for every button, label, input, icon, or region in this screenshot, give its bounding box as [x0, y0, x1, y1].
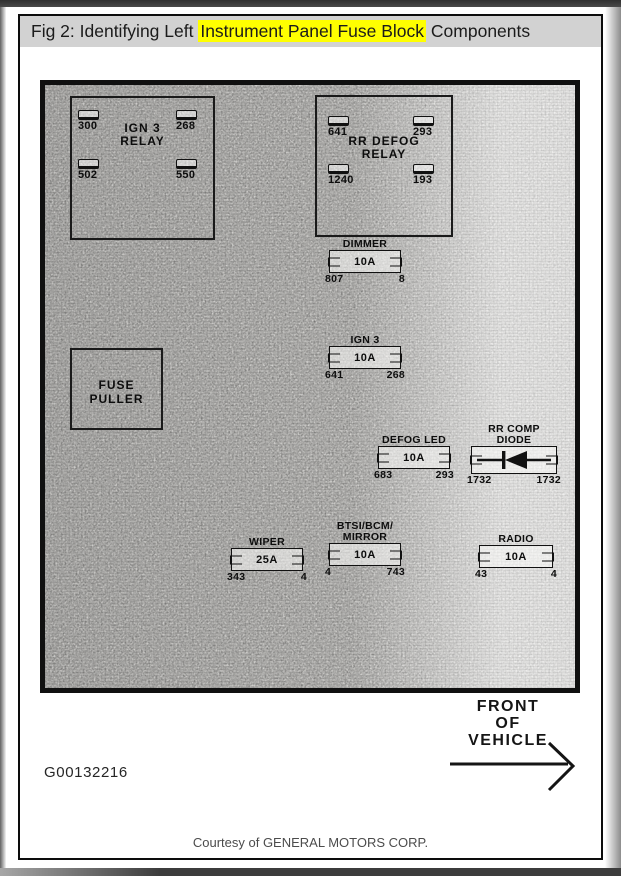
terminal-number: 641: [325, 370, 343, 381]
fuse-clip-icon: [478, 552, 490, 561]
relay-terminal: 300: [78, 110, 114, 132]
fuse-body: 10A: [329, 250, 401, 273]
bottom-dark-bar: [0, 868, 621, 876]
relay-name-line: RELAY: [317, 148, 451, 161]
fuse-rating: 10A: [403, 452, 425, 464]
relay-name: RR DEFOG RELAY: [317, 135, 451, 161]
terminal-number: 807: [325, 274, 343, 285]
front-label-line: VEHICLE: [450, 732, 566, 749]
fuse-rating: 10A: [354, 256, 376, 268]
fuse-clip-icon: [390, 550, 402, 559]
terminal-number: 300: [78, 121, 97, 132]
rr-comp-diode: RR COMP DIODE 1732 1732: [471, 424, 557, 486]
fuse-clip-icon: [390, 257, 402, 266]
title-highlight: Instrument Panel Fuse Block: [198, 20, 426, 42]
title-suffix: Components: [426, 21, 530, 41]
terminal-number: 293: [436, 470, 454, 481]
terminal-number: 4: [551, 569, 557, 580]
fuse-rating: 10A: [354, 352, 376, 364]
left-edge-shadow: [0, 7, 6, 868]
fuse-rating: 10A: [354, 549, 376, 561]
fuse-terminals: 343 4: [227, 572, 307, 583]
rr-defog-relay-box: RR DEFOG RELAY 641 293 1240 193: [315, 95, 453, 237]
terminal-icon: [328, 116, 349, 126]
fuse-clip-icon: [390, 353, 402, 362]
fuse-puller-line: FUSE: [72, 378, 161, 392]
terminal-number: 4: [301, 572, 307, 583]
terminal-number: 268: [387, 370, 405, 381]
fuse-body: 10A: [479, 545, 553, 568]
fuse-terminals: 43 4: [475, 569, 557, 580]
terminal-icon: [78, 159, 99, 169]
fuse-terminals: 683 293: [374, 470, 454, 481]
fuse-ign3: IGN 3 10A 641 268: [329, 335, 401, 381]
terminal-icon: [328, 164, 349, 174]
fuse-puller-box: FUSE PULLER: [70, 348, 163, 430]
relay-terminal: 1240: [328, 164, 364, 186]
terminal-number: 43: [475, 569, 487, 580]
diode-body: [471, 446, 557, 474]
terminal-icon: [78, 110, 99, 120]
fuse-defog-led: DEFOG LED 10A 683 293: [378, 435, 450, 481]
title-prefix: Fig 2: Identifying Left: [31, 21, 198, 41]
fuse-name: DIMMER: [329, 239, 401, 250]
terminal-number: 343: [227, 572, 245, 583]
terminal-icon: [176, 110, 197, 120]
terminal-number: 1240: [328, 175, 354, 186]
fuse-clip-icon: [542, 552, 554, 561]
terminal-number: 4: [325, 567, 331, 578]
terminal-number: 550: [176, 170, 195, 181]
figure-title: Fig 2: Identifying Left Instrument Panel…: [20, 16, 601, 47]
terminal-number: 743: [387, 567, 405, 578]
terminal-number: 1732: [536, 475, 561, 486]
terminal-icon: [176, 159, 197, 169]
fuse-clip-icon: [377, 453, 389, 462]
relay-terminal: 550: [176, 159, 212, 181]
relay-terminal: 293: [413, 116, 449, 138]
diode-terminals: 1732 1732: [467, 475, 561, 486]
terminal-number: 502: [78, 170, 97, 181]
diode-icon: [474, 447, 554, 473]
terminal-number: 641: [328, 127, 347, 138]
fuse-puller-line: PULLER: [72, 392, 161, 406]
diode-name: DIODE: [471, 435, 557, 446]
front-label-line: FRONT: [450, 698, 566, 715]
fuse-body: 10A: [329, 543, 401, 566]
relay-terminal: 193: [413, 164, 449, 186]
figure-code: G00132216: [44, 764, 128, 781]
relay-terminal: 502: [78, 159, 114, 181]
relay-terminal: 268: [176, 110, 212, 132]
fuse-name: DEFOG LED: [378, 435, 450, 446]
right-edge-shadow: [605, 7, 621, 868]
fuse-name: RADIO: [479, 534, 553, 545]
fuse-dimmer: DIMMER 10A 807 8: [329, 239, 401, 285]
fuse-clip-icon: [439, 453, 451, 462]
relay-name-line: RELAY: [72, 135, 213, 148]
page-canvas: Fig 2: Identifying Left Instrument Panel…: [0, 0, 621, 876]
terminal-icon: [413, 116, 434, 126]
fuse-block-diagram: IGN 3 RELAY 300 268 502 550 RR: [40, 80, 580, 693]
fuse-name: MIRROR: [329, 532, 401, 543]
fuse-body: 10A: [378, 446, 450, 469]
front-of-vehicle-label: FRONT OF VEHICLE: [450, 698, 566, 749]
fuse-clip-icon: [292, 555, 304, 564]
terminal-number: 683: [374, 470, 392, 481]
ign3-relay-box: IGN 3 RELAY 300 268 502 550: [70, 96, 215, 240]
fuse-clip-icon: [328, 550, 340, 559]
fuse-name: IGN 3: [329, 335, 401, 346]
fuse-body: 10A: [329, 346, 401, 369]
fuse-rating: 25A: [256, 554, 278, 566]
terminal-number: 1732: [467, 475, 492, 486]
fuse-body: 25A: [231, 548, 303, 571]
fuse-terminals: 807 8: [325, 274, 405, 285]
fuse-clip-icon: [328, 257, 340, 266]
fuse-clip-icon: [546, 456, 558, 465]
top-dark-bar: [0, 0, 621, 7]
terminal-number: 293: [413, 127, 432, 138]
fuse-clip-icon: [230, 555, 242, 564]
fuse-name: WIPER: [231, 537, 303, 548]
fuse-clip-icon: [328, 353, 340, 362]
courtesy-line: Courtesy of GENERAL MOTORS CORP.: [18, 835, 603, 850]
terminal-number: 193: [413, 175, 432, 186]
fuse-clip-icon: [470, 456, 482, 465]
fuse-wiper: WIPER 25A 343 4: [231, 537, 303, 583]
terminal-icon: [413, 164, 434, 174]
fuse-radio: RADIO 10A 43 4: [479, 534, 553, 580]
front-label-line: OF: [450, 715, 566, 732]
fuse-btsi-bcm-mirror: BTSI/BCM/ MIRROR 10A 4 743: [329, 521, 401, 578]
relay-terminal: 641: [328, 116, 364, 138]
terminal-number: 268: [176, 121, 195, 132]
fuse-terminals: 641 268: [325, 370, 405, 381]
fuse-rating: 10A: [505, 551, 527, 563]
terminal-number: 8: [399, 274, 405, 285]
fuse-terminals: 4 743: [325, 567, 405, 578]
